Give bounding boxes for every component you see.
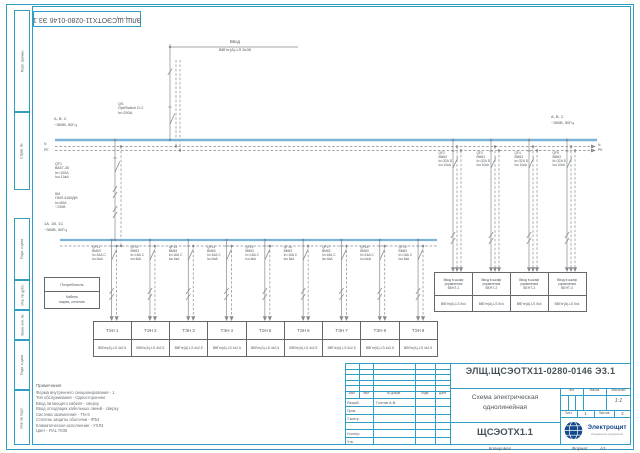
frame-side-label: Инв. № дубл. (20, 285, 24, 306)
consumer-name: ТЭН 8 (361, 322, 398, 339)
consumer-cable: ВВГнг(А)-LS 4х2,5 (247, 339, 284, 356)
qs-switch-label: In=250А (118, 111, 132, 116)
doc-name-line-2: однолинейная (451, 404, 559, 412)
consumer-name: ТЭН 7 (323, 322, 360, 339)
frame-side-cell: Взам. инв. № (14, 310, 30, 340)
consumer-name-line: ВЕНТ-2 (485, 286, 497, 290)
company-tagline: объединение предприятий (584, 433, 630, 436)
format-label: Формат (572, 446, 588, 451)
heater-qf-label: Icu 6кА (130, 258, 141, 262)
consumer-cable: ВВГнг(А)-LS 5х4 (435, 295, 472, 311)
consumer-cell: ТЭН 7ВВГнг(А)-LS 4х2,5 (322, 322, 360, 356)
consumer-cell: ТЭН 6ВВГнг(А)-LS 4х2,5 (284, 322, 322, 356)
consumer-cable: ВВГнг(А)-LS 4х2,5 (94, 339, 131, 356)
consumer-cable: ВВГнг(А)-LS 4х2,5 (400, 339, 437, 356)
drawing-sheet: ЭЛЩ.ЩСЭОТХ11-0280-0146 Э3.1 Ввод ВВГнг(А… (0, 0, 640, 453)
consumer-cell: Ввод в шкафуправленияВЕНТ-3ВВГнг(А)-LS 5… (510, 273, 548, 311)
frame-side-cell: Подп. и дата (14, 218, 30, 280)
scale-value: 1:1 (606, 398, 631, 405)
lit-label: Лит. (560, 389, 583, 393)
vent-qf-label: Icu 10кА (477, 164, 489, 168)
heater-consumer-row: ТЭН 1ВВГнг(А)-LS 4х2,5ТЭН 2ВВГнг(А)-LS 4… (93, 321, 438, 357)
consumer-cable: ВВГнг(А)-LS 4х2,5 (170, 339, 207, 356)
consumer-cable: ВВГнг(А)-LS 4х2,5 (361, 339, 398, 356)
heater-qf-label: Icu 6кА (245, 258, 256, 262)
title-designation: ЭЛЩ.ЩСЭОТХ11-0280-0146 Э3.1 (451, 366, 630, 377)
company-brand-name: Электрощит (584, 424, 630, 432)
note-line: Климатическое исполнение - УХЛ4 (36, 423, 103, 428)
frame-side-cell: Инв. № подл. (14, 390, 30, 445)
consumer-cable: ВВГнг(А)-LS 5х4 (511, 295, 548, 311)
vent-consumer-row: Ввод в шкафуправленияВЕНТ-1ВВГнг(А)-LS 5… (434, 272, 587, 312)
consumer-cable: ВВГнг(А)-LS 4х2,5 (132, 339, 169, 356)
consumer-cell: ТЭН 4ВВГнг(А)-LS 4х2,5 (207, 322, 245, 356)
frame-side-label: Подп. и дата (20, 239, 24, 259)
consumer-name: ТЭН 1 (94, 322, 131, 339)
consumer-name-line: ВЕНТ-1 (448, 286, 460, 290)
note-line: Система заземления - TN-S (36, 412, 90, 417)
sheets-value: 2 (614, 411, 631, 416)
format-value: А3 (600, 446, 606, 451)
consumer-cable: ВВГнг(А)-LS 5х4 (549, 295, 586, 311)
consumer-cell: ТЭН 8ВВГнг(А)-LS 4х2,5 (360, 322, 398, 356)
consumer-cell: Ввод в шкафуправленияВЕНТ-2ВВГнг(А)-LS 5… (472, 273, 510, 311)
sheet-label: Лист (560, 412, 577, 416)
consumer-name-line: ВЕНТ-3 (523, 286, 535, 290)
copy-label: Копировал (430, 446, 570, 451)
main-feeder-label: ~230В (55, 205, 66, 209)
note-line: Цвет - RAL 7035 (36, 428, 67, 433)
sheet-value: 1 (577, 411, 594, 416)
vent-qf-label: Icu 10кА (439, 164, 451, 168)
consumer-name: ТЭН 9 (400, 322, 437, 339)
consumer-cable: ВВГнг(А)-LS 4х2,5 (285, 339, 322, 356)
frame-side-label: Инв. № подл. (20, 407, 24, 428)
consumer-cell: ТЭН 5ВВГнг(А)-LS 4х2,5 (246, 322, 284, 356)
consumer-name-line: ВЕНТ-4 (561, 286, 573, 290)
notes-title: Примечания (36, 383, 61, 388)
consumer-cable: ВВГнг(А)-LS 4х2,5 (323, 339, 360, 356)
frame-side-label: Перв. примен. (20, 50, 24, 73)
sheets-label: Листов (594, 412, 614, 416)
heater-qf-label: Icu 6кА (169, 258, 180, 262)
frame-side-label: Взам. инв. № (20, 314, 24, 335)
scale-label: Масштаб (606, 389, 631, 393)
heater-qf-label: Icu 6кА (207, 258, 218, 262)
consumer-cell: ТЭН 3ВВГнг(А)-LS 4х2,5 (169, 322, 207, 356)
consumer-name: ТЭН 5 (247, 322, 284, 339)
consumer-cell: ТЭН 1ВВГнг(А)-LS 4х2,5 (94, 322, 131, 356)
frame-side-cell: Справ. № (14, 112, 30, 190)
heater-qf-label: Icu 6кА (322, 258, 333, 262)
frame-side-cell: Перв. примен. (14, 10, 30, 112)
consumer-cable: ВВГнг(А)-LS 4х2,5 (208, 339, 245, 356)
heater-qf-label: Icu 6кА (399, 258, 410, 262)
frame-side-cell: Подп. и дата (14, 340, 30, 390)
consumer-name: ТЭН 6 (285, 322, 322, 339)
frame-side-cell: Инв. № дубл. (14, 280, 30, 310)
frame-side-label: Справ. № (20, 143, 24, 158)
consumer-cell: ТЭН 9ВВГнг(А)-LS 4х2,5 (399, 322, 437, 356)
consumer-name: ТЭН 3 (170, 322, 207, 339)
company-logo-globe-icon (562, 419, 585, 442)
heater-qf-label: Icu 6кА (360, 258, 371, 262)
mass-label: Масса (583, 389, 606, 393)
consumer-cell: ТЭН 2ВВГнг(А)-LS 4х2,5 (131, 322, 169, 356)
vent-qf-label: Icu 10кА (553, 164, 565, 168)
main-feeder-label: Icu 10кА (55, 175, 69, 179)
note-line: Форма внутреннего секционирования - 1 (36, 390, 115, 395)
consumer-name: ТЭН 2 (132, 322, 169, 339)
consumer-cable: ВВГнг(А)-LS 5х4 (473, 295, 510, 311)
note-line: Степень защиты оболочки - IP54 (36, 417, 99, 422)
doc-name-line-1: Схема электрическая (451, 394, 559, 402)
vent-qf-label: Icu 10кА (515, 164, 527, 168)
note-line: Ввод питающего кабеля - сверху (36, 401, 99, 406)
note-line: Тип обслуживания - Одностороннее (36, 395, 106, 400)
consumer-name: ТЭН 4 (208, 322, 245, 339)
consumer-cell: Ввод в шкафуправленияВЕНТ-1ВВГнг(А)-LS 5… (435, 273, 472, 311)
note-line: Ввод отходящих кабельных линий - сверху (36, 406, 119, 411)
consumer-cell: Ввод в шкафуправленияВЕНТ-4ВВГнг(А)-LS 5… (548, 273, 586, 311)
object-name: ЩСЭОТХ1.1 (451, 427, 559, 438)
heater-qf-label: Icu 6кА (92, 258, 103, 262)
heater-qf-label: Icu 6кА (284, 258, 295, 262)
frame-side-label: Подп. и дата (20, 355, 24, 375)
